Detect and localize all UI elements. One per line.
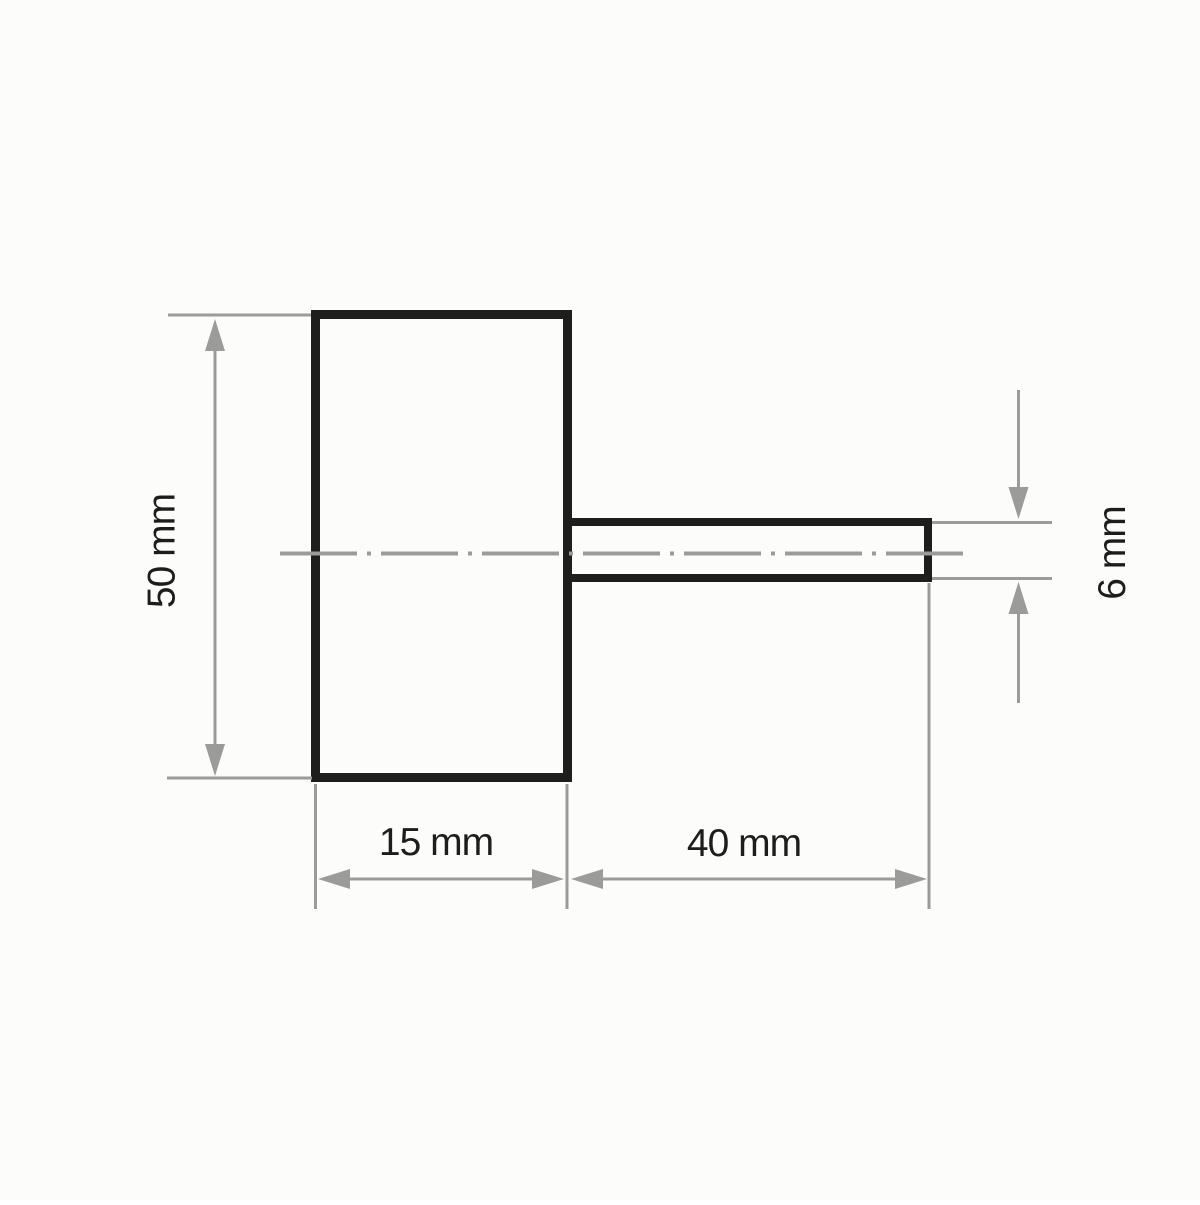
svg-text:6 mm: 6 mm [1091, 506, 1134, 600]
svg-text:40 mm: 40 mm [687, 822, 801, 865]
svg-text:15 mm: 15 mm [379, 821, 493, 864]
svg-text:50 mm: 50 mm [141, 494, 184, 608]
